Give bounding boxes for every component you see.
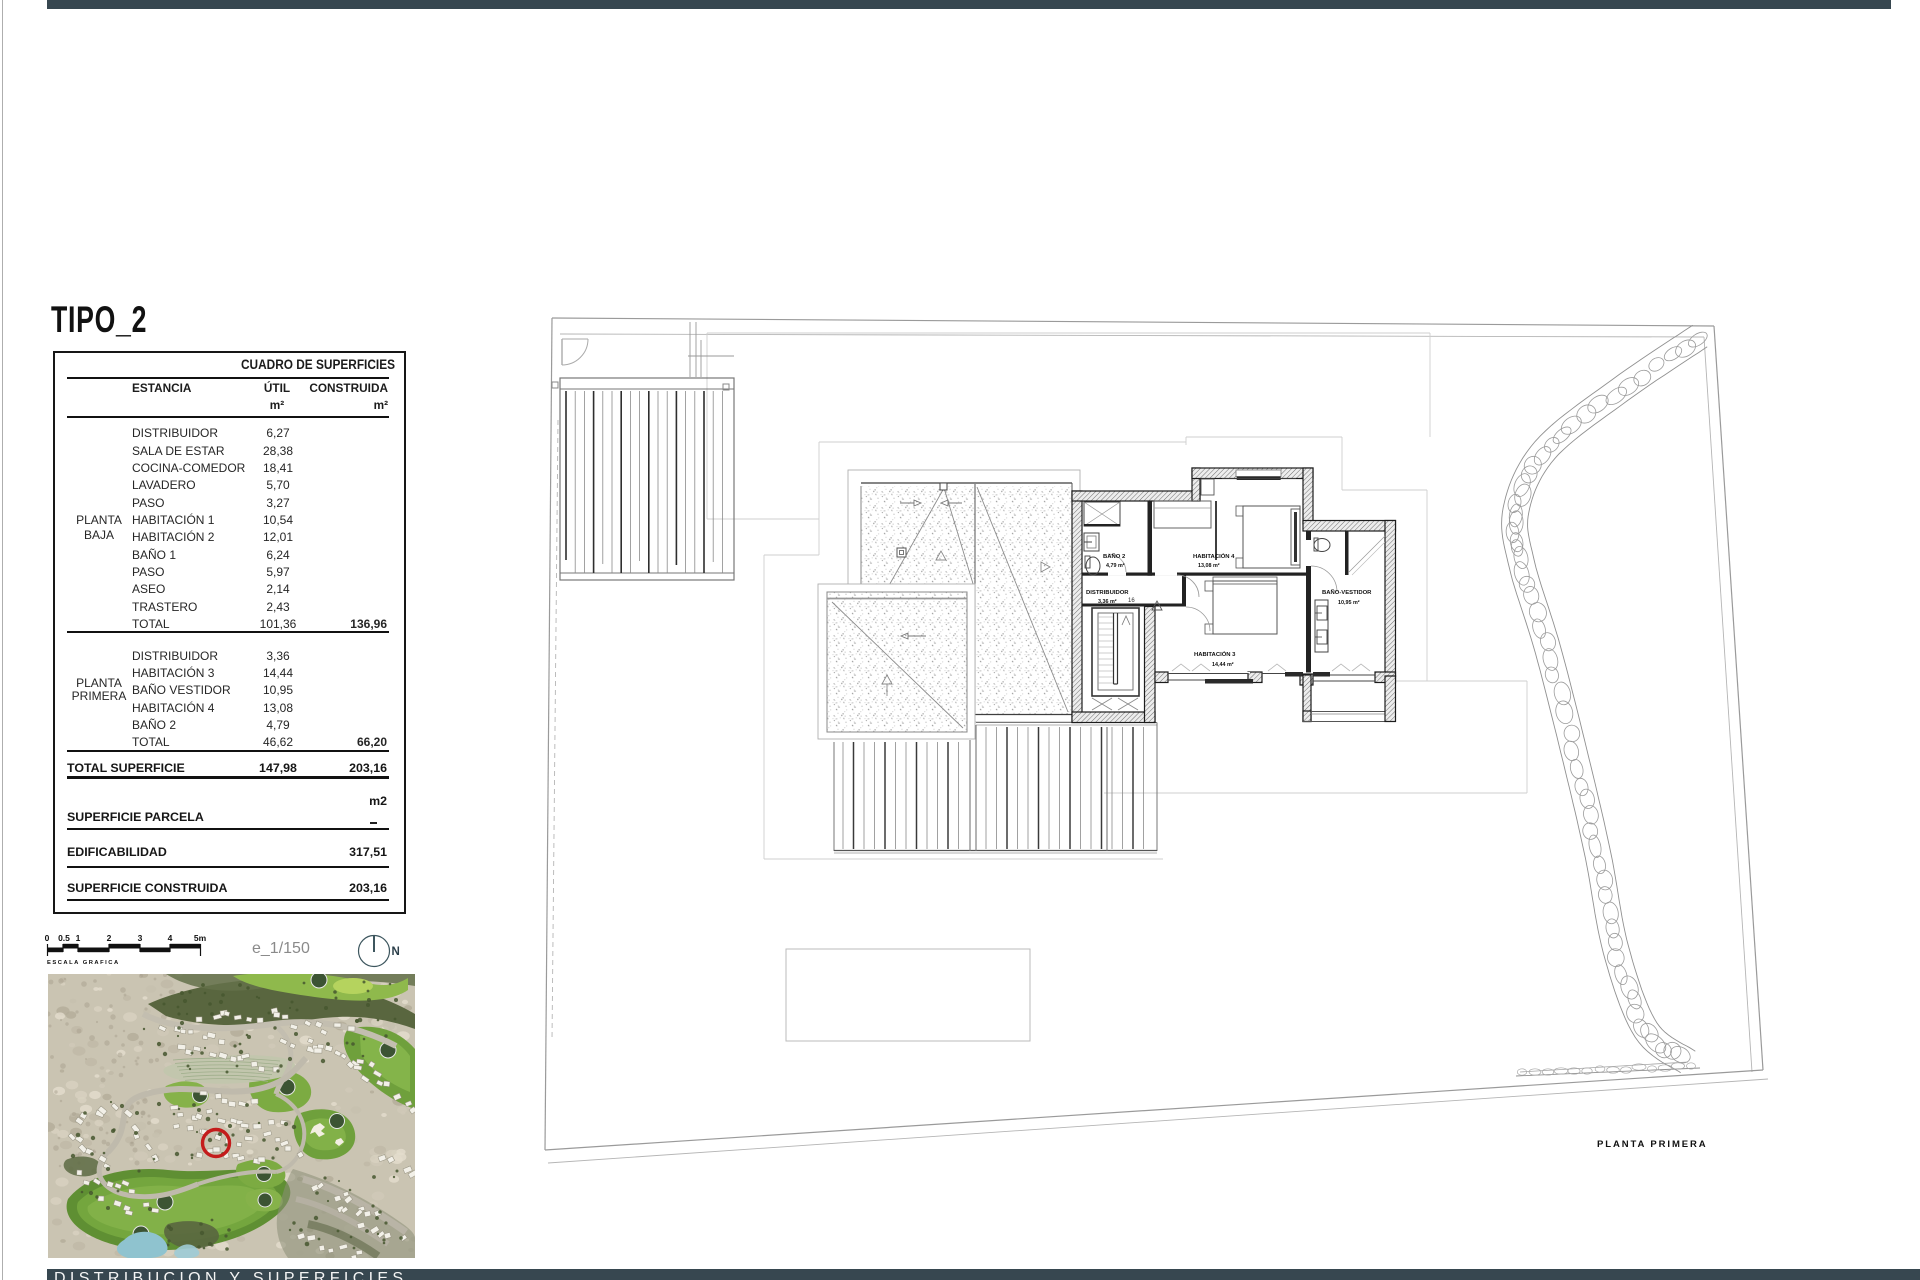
svg-text:1: 1 [76,933,81,943]
svg-text:HABITACIÓN 3: HABITACIÓN 3 [1194,650,1236,658]
svg-text:4,79 m²: 4,79 m² [1106,563,1125,569]
svg-text:N: N [392,946,400,958]
svg-text:13,08 m²: 13,08 m² [1198,563,1220,569]
svg-text:DISTRIBUIDOR: DISTRIBUIDOR [1086,590,1129,596]
svg-text:BAÑO 2: BAÑO 2 [1103,553,1126,560]
svg-text:16: 16 [1128,598,1135,604]
svg-text:0.5: 0.5 [58,933,70,943]
svg-text:4: 4 [168,933,173,943]
svg-text:HABITACIÓN 4: HABITACIÓN 4 [1193,552,1235,560]
svg-text:e_1/150: e_1/150 [252,940,310,957]
svg-text:3: 3 [138,933,143,943]
svg-text:5m: 5m [194,933,207,943]
svg-text:2: 2 [107,933,112,943]
svg-text:10,95 m²: 10,95 m² [1338,600,1360,606]
svg-text:BAÑO-VESTIDOR: BAÑO-VESTIDOR [1322,589,1372,596]
svg-text:PLANTA PRIMERA: PLANTA PRIMERA [1597,1139,1708,1150]
svg-text:0: 0 [45,933,50,943]
svg-text:14,44 m²: 14,44 m² [1212,662,1234,668]
svg-text:ESCALA GRAFICA: ESCALA GRAFICA [47,960,120,966]
svg-text:3,36 m²: 3,36 m² [1098,599,1117,605]
